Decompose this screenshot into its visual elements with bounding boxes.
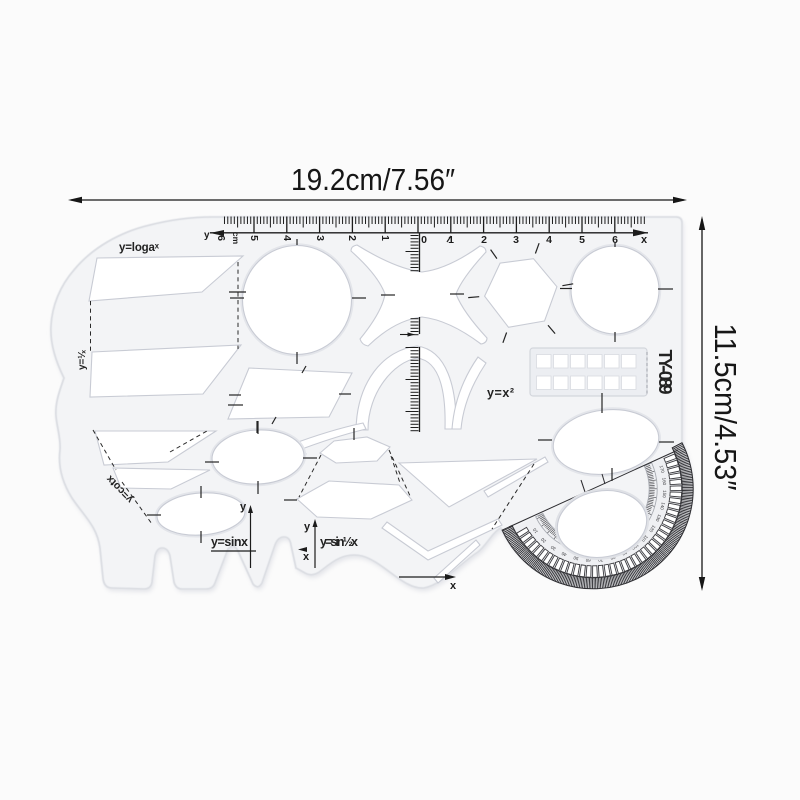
svg-text:2: 2 — [481, 234, 487, 246]
svg-text:2: 2 — [346, 235, 358, 241]
svg-text:1: 1 — [379, 235, 391, 241]
svg-text:x: x — [303, 551, 310, 563]
svg-text:4: 4 — [281, 235, 293, 241]
svg-text:cm: cm — [231, 232, 241, 245]
svg-text:4: 4 — [546, 234, 552, 246]
svg-text:y=logaˣ: y=logaˣ — [119, 242, 160, 254]
svg-text:y=sin½x: y=sin½x — [320, 535, 358, 549]
svg-text:y: y — [240, 501, 247, 513]
svg-text:3: 3 — [314, 235, 326, 241]
svg-text:3: 3 — [513, 234, 519, 246]
svg-text:6: 6 — [215, 235, 227, 241]
svg-text:19.2cm/7.56″: 19.2cm/7.56″ — [291, 162, 455, 197]
svg-text:150: 150 — [662, 490, 668, 498]
svg-text:TY--089: TY--089 — [655, 350, 675, 395]
svg-text:11.5cm/4.53″: 11.5cm/4.53″ — [708, 324, 743, 491]
svg-text:y=x²: y=x² — [487, 386, 514, 400]
svg-text:x: x — [450, 580, 457, 592]
svg-text:y=¹⁄ₓ: y=¹⁄ₓ — [77, 350, 88, 370]
svg-text:y: y — [304, 521, 311, 533]
svg-text:5: 5 — [248, 235, 260, 241]
svg-text:x: x — [641, 234, 648, 246]
svg-text:y: y — [204, 230, 210, 241]
svg-text:160: 160 — [661, 477, 667, 485]
svg-text:y=sinx: y=sinx — [211, 535, 248, 549]
svg-text:5: 5 — [579, 234, 585, 246]
svg-text:0: 0 — [421, 234, 427, 246]
